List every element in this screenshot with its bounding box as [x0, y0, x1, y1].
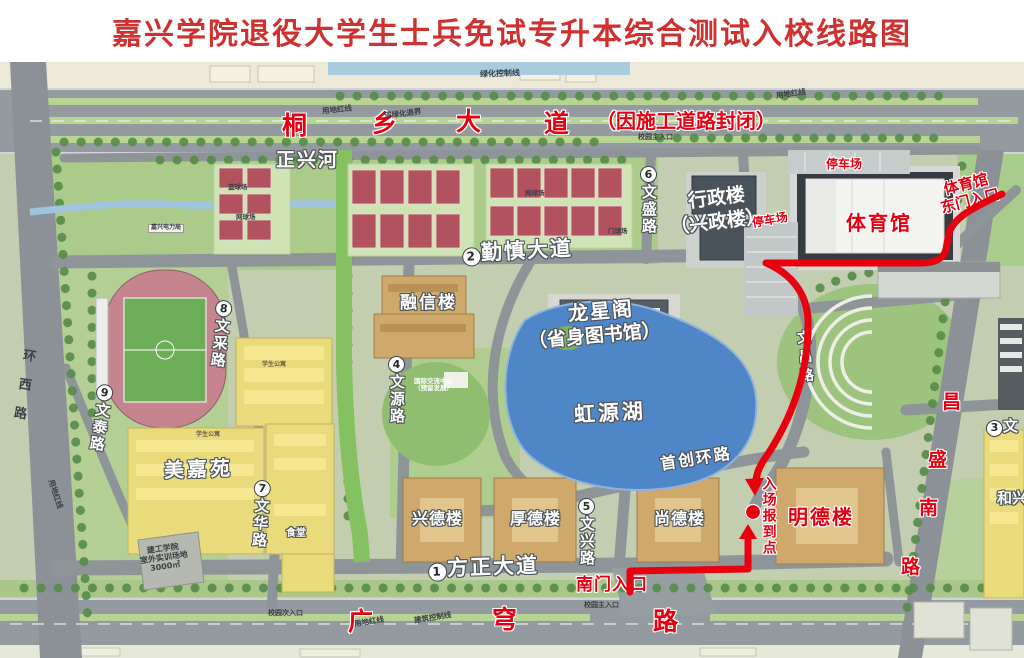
parking-label-top: 停车场	[826, 158, 862, 171]
road-changsheng-char3: 南	[919, 498, 938, 519]
road-wentai-number: 9	[95, 383, 114, 402]
lake-label: 虹源湖	[573, 400, 646, 427]
road-tongxiang-char1: 桐	[282, 112, 307, 140]
green-ctrl-label: 绿化控制线	[480, 69, 520, 79]
road-wencai-number: 8	[214, 299, 233, 318]
road-wenchang-east-number: 3	[986, 420, 1003, 437]
tennis-court-label-2: 网球场	[525, 190, 545, 197]
road-wenyuan: 4 文源路	[388, 356, 405, 425]
road-wensheng: 6 文盛路	[640, 166, 657, 235]
road-qinshen: 2勤慎大道	[461, 237, 573, 267]
labels-layer: 桐 乡 大 道 （因施工道路封闭） 正兴河 用地红线 河绿化退界 绿化控制线 用…	[0, 62, 1024, 658]
rongxin-label: 融信楼	[400, 294, 457, 313]
xingde-label: 兴德楼	[412, 510, 463, 528]
road-fangzheng-number: 1	[428, 562, 448, 582]
main-gate-label-bottom: 校园主入口	[584, 602, 619, 610]
mingde-label: 明德楼	[788, 506, 854, 528]
river-label: 正兴河	[276, 150, 339, 171]
red-line-label-top: 用地红线	[322, 104, 353, 115]
road-huanxi: 环西路	[7, 347, 35, 435]
red-line-label-right: 用地红线	[776, 88, 807, 100]
longxingge-label: 龙星阁	[567, 297, 635, 325]
power-bureau-sign: 嘉兴电力局	[148, 224, 184, 233]
campus-map: 桐 乡 大 道 （因施工道路封闭） 正兴河 用地红线 河绿化退界 绿化控制线 用…	[0, 62, 1024, 658]
road-wenhua-number: 7	[253, 479, 271, 497]
road-closure-note: （因施工道路封闭）	[596, 110, 776, 132]
road-changsheng-char2: 盛	[928, 450, 947, 471]
gym-east-gate-label: 体育馆 东门入口	[935, 169, 1001, 216]
river-setback-label: 河绿化退界	[384, 108, 422, 121]
road-wencai: 8 文采路	[208, 299, 233, 370]
gateball-court-label: 门球场	[608, 228, 628, 235]
road-guangqiong-char2: 穹	[492, 606, 517, 634]
side-gate-label: 校园次入口	[268, 610, 303, 618]
road-wenyuan-number: 4	[388, 356, 405, 373]
road-fangzheng: 1方正大道	[428, 554, 540, 582]
road-wenchang-east: 3文	[986, 418, 1018, 437]
road-wenxing: 5 文兴路	[578, 498, 595, 567]
tennis-court-label-1: 网球场	[236, 214, 256, 221]
road-wentai: 9 文泰路	[87, 383, 115, 454]
road-wenhua: 7 文华路	[250, 479, 272, 549]
road-wenchang: 文昌路	[794, 330, 814, 388]
south-gate-label: 南门入口	[576, 576, 648, 595]
header: 嘉兴学院退役大学生士兵免试专升本综合测试入校线路图	[0, 0, 1024, 62]
canteen-label: 食堂	[286, 528, 306, 539]
dorm-label-1: 学生公寓	[196, 432, 220, 439]
red-line-label-left: 用地红线	[46, 479, 63, 510]
houde-label: 厚德楼	[510, 510, 561, 528]
basketball-court-label: 篮球场	[228, 184, 248, 191]
intl-center-label: 国际交流中心 （预留发展）	[414, 378, 453, 393]
build-ctrl-label: 建筑控制线	[414, 611, 452, 625]
road-changsheng-char4: 路	[901, 557, 920, 578]
training-ground-label: 建工学院 室外实训场地 3000㎡	[126, 539, 201, 576]
dorm-label-2: 学生公寓	[262, 362, 286, 369]
gym-label: 体育馆	[846, 212, 912, 234]
main-gate-label-top: 校园主入口	[638, 134, 673, 142]
shangde-label: 尚德楼	[654, 510, 705, 528]
road-shouchuang: 首创环路	[659, 444, 733, 473]
road-qinshen-number: 2	[462, 247, 482, 267]
road-guangqiong-char3: 路	[653, 608, 678, 636]
screenshot: 嘉兴学院退役大学生士兵免试专升本综合测试入校线路图	[0, 0, 1024, 658]
hexing-label: 和兴	[997, 490, 1024, 507]
page-title: 嘉兴学院退役大学生士兵免试专升本综合测试入校线路图	[112, 9, 912, 53]
checkin-point-label: 入场报到点	[760, 476, 776, 556]
road-wensheng-number: 6	[640, 166, 657, 183]
road-wenxing-number: 5	[578, 498, 595, 515]
meijiayuan-label: 美嘉苑	[164, 457, 234, 482]
road-changsheng-char1: 昌	[942, 392, 961, 413]
road-tongxiang-char4: 道	[544, 110, 569, 138]
road-tongxiang-char3: 大	[456, 108, 481, 136]
longxingge-label2: （省身图书馆）	[527, 320, 661, 353]
